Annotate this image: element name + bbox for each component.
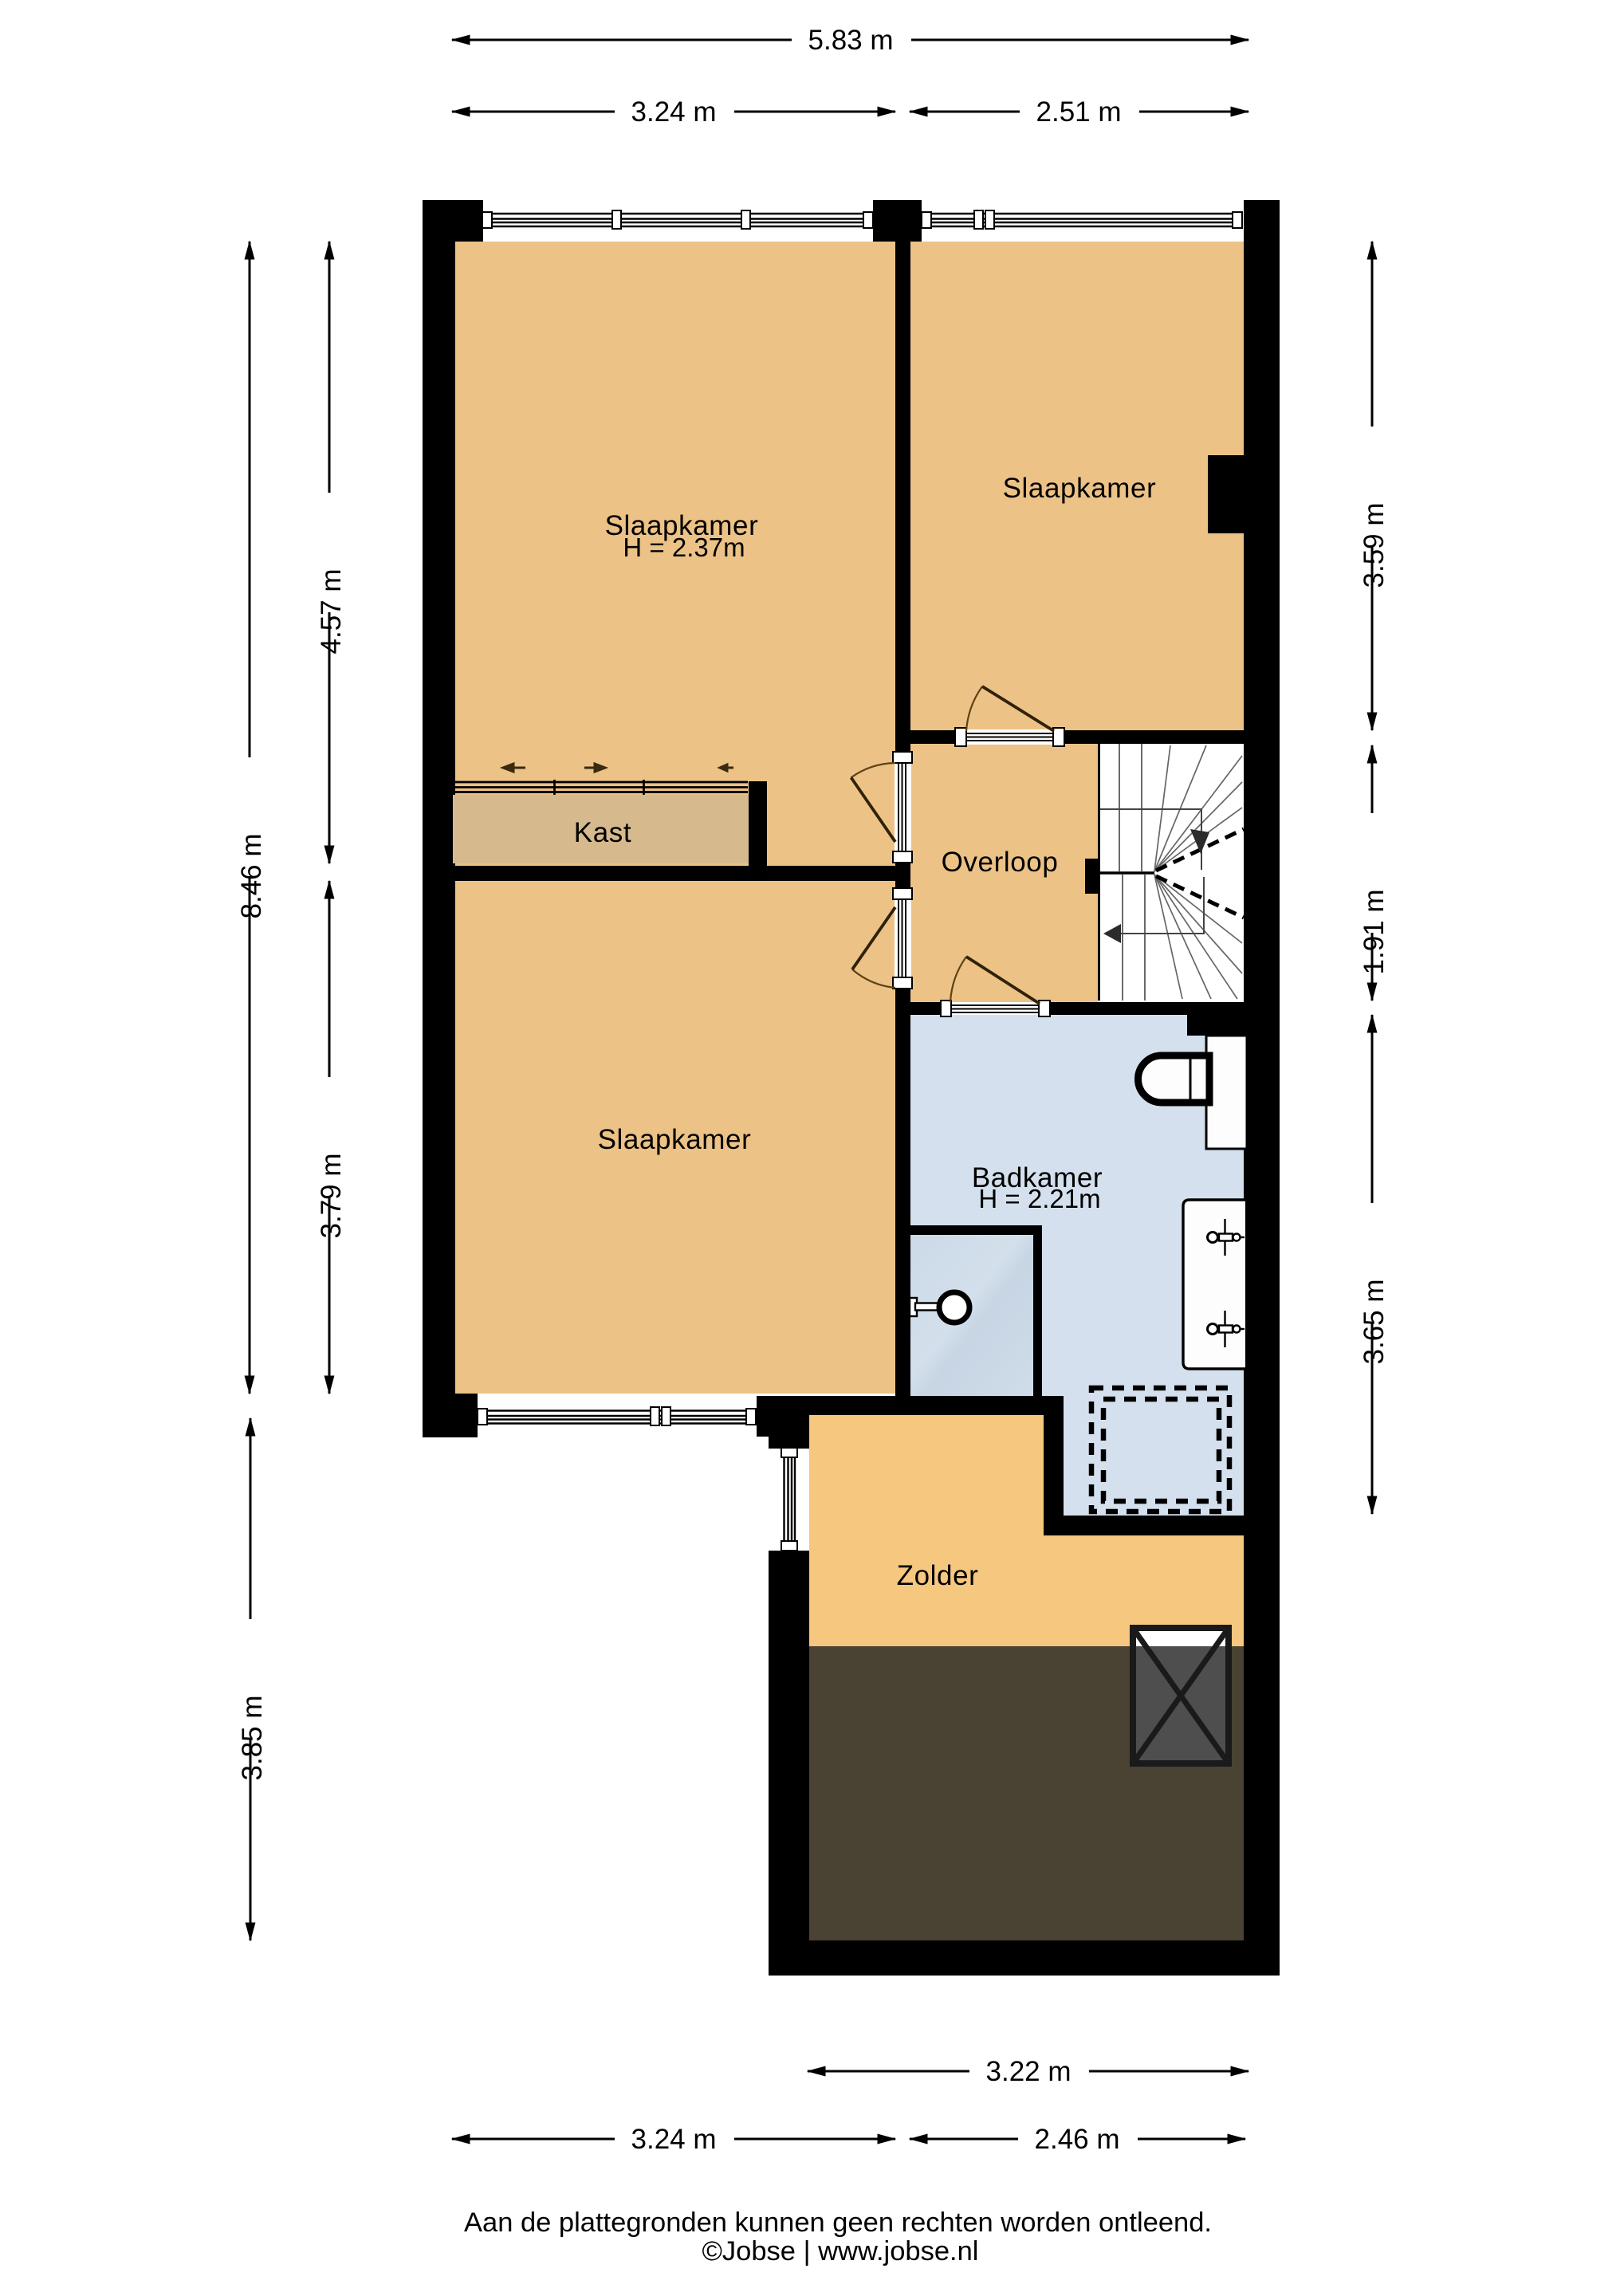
- svg-text:Overloop: Overloop: [942, 847, 1059, 878]
- svg-text:5.83 m: 5.83 m: [808, 25, 894, 56]
- svg-text:3.65 m: 3.65 m: [1359, 1280, 1390, 1365]
- svg-text:3.24 m: 3.24 m: [631, 96, 717, 128]
- svg-text:©Jobse | www.jobse.nl: ©Jobse | www.jobse.nl: [702, 2236, 979, 2267]
- svg-text:8.46 m: 8.46 m: [236, 834, 267, 919]
- svg-text:4.57 m: 4.57 m: [316, 569, 347, 655]
- svg-text:Slaapkamer: Slaapkamer: [598, 1124, 752, 1155]
- svg-text:3.85 m: 3.85 m: [237, 1696, 268, 1781]
- svg-text:H = 2.21m: H = 2.21m: [978, 1184, 1100, 1213]
- svg-text:Slaapkamer: Slaapkamer: [1003, 473, 1157, 504]
- svg-text:3.22 m: 3.22 m: [986, 2056, 1072, 2087]
- svg-text:1.91 m: 1.91 m: [1359, 890, 1390, 975]
- svg-text:3.59 m: 3.59 m: [1359, 503, 1390, 588]
- svg-text:2.46 m: 2.46 m: [1035, 2124, 1120, 2155]
- svg-text:2.51 m: 2.51 m: [1036, 96, 1122, 128]
- svg-text:3.24 m: 3.24 m: [631, 2124, 717, 2155]
- svg-text:3.79 m: 3.79 m: [316, 1154, 347, 1239]
- svg-text:Kast: Kast: [574, 817, 631, 848]
- svg-text:Zolder: Zolder: [897, 1560, 979, 1591]
- svg-text:H = 2.37m: H = 2.37m: [623, 533, 745, 562]
- svg-text:Aan de plattegronden kunnen ge: Aan de plattegronden kunnen geen rechten…: [464, 2208, 1212, 2238]
